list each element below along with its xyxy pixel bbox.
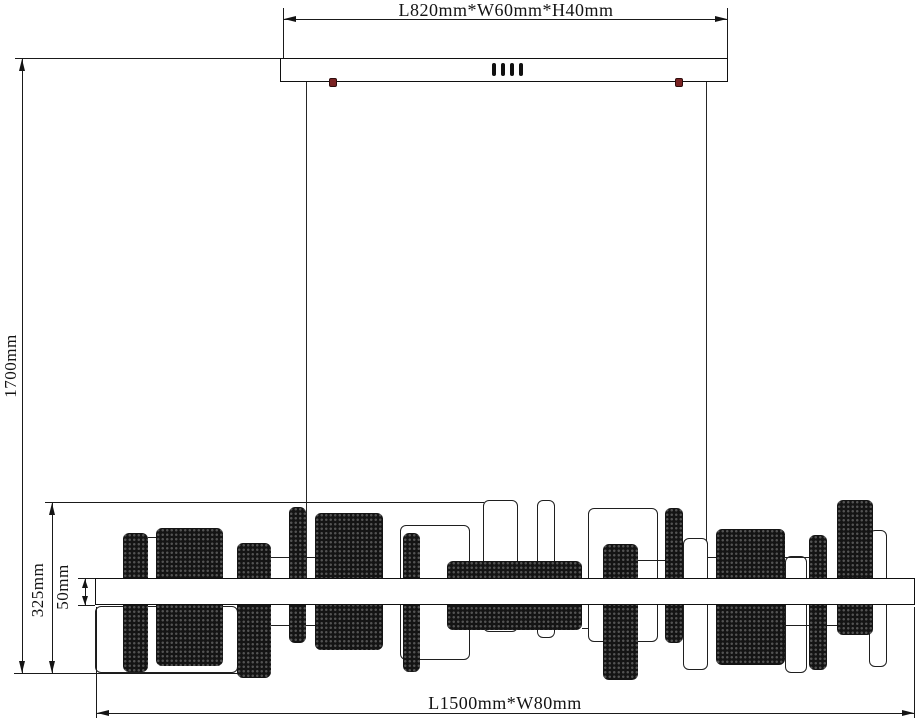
dimension-line	[283, 19, 727, 20]
arrowhead-icon	[82, 579, 88, 588]
dimension-line	[22, 58, 23, 673]
extension-line	[45, 502, 484, 503]
canopy-dimension-label: L820mm*W60mm*H40mm	[399, 0, 614, 21]
crystal-panel-solid	[237, 543, 271, 678]
fixture-bar	[95, 578, 915, 605]
panel-connector	[785, 625, 809, 626]
extension-line	[14, 673, 238, 674]
canopy-slot	[519, 63, 523, 76]
panel-connector	[785, 557, 809, 558]
arrowhead-icon	[715, 16, 727, 22]
panel-connector	[582, 628, 588, 629]
extension-line	[727, 8, 728, 58]
arrowhead-icon	[49, 661, 55, 673]
extension-line	[914, 607, 915, 718]
extension-line	[96, 607, 97, 718]
mounting-screw	[675, 78, 683, 87]
crystal-panel-outline	[785, 556, 807, 673]
panel-connector	[708, 557, 716, 558]
crystal-panel-solid	[289, 507, 306, 643]
crystal-panel-solid	[603, 544, 638, 680]
technical-drawing-canvas: L820mm*W60mm*H40mm 1700mm 325mm 50mm L15…	[0, 0, 917, 720]
suspension-wire	[706, 82, 707, 578]
body-dimension-label: L1500mm*W80mm	[428, 693, 582, 714]
crystal-panel-solid	[665, 508, 683, 643]
panel-connector	[306, 557, 315, 558]
panel-connector	[271, 557, 289, 558]
panel-connector	[827, 625, 837, 626]
panel-connector	[148, 537, 156, 538]
suspension-wire	[306, 82, 307, 578]
panel-connector	[306, 625, 315, 626]
panel-connector	[271, 625, 289, 626]
arrowhead-icon	[97, 710, 109, 716]
extension-line	[15, 58, 280, 59]
canopy-slot	[510, 63, 514, 76]
arrowhead-icon	[49, 503, 55, 515]
arrowhead-icon	[902, 710, 914, 716]
extension-line	[78, 605, 95, 606]
canopy-slot	[492, 63, 496, 76]
canopy-slot	[501, 63, 505, 76]
arrowhead-icon	[19, 59, 25, 71]
drop-height-label: 1700mm	[1, 334, 21, 397]
arrowhead-icon	[19, 661, 25, 673]
body-height-label: 325mm	[28, 563, 48, 617]
mounting-screw	[329, 78, 337, 87]
panel-connector	[638, 560, 665, 561]
arrowhead-icon	[284, 16, 296, 22]
ceiling-canopy	[280, 58, 728, 82]
arrowhead-icon	[82, 596, 88, 605]
crystal-panel-solid	[837, 500, 873, 635]
bar-height-label: 50mm	[53, 564, 73, 609]
